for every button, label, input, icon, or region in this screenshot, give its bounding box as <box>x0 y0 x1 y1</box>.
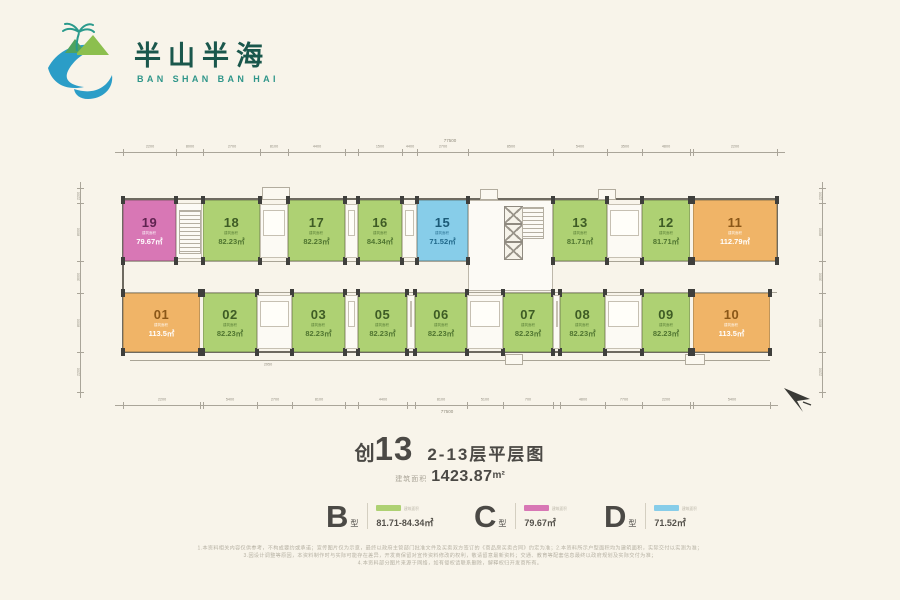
unit-area-label: 建筑面积 <box>373 232 387 236</box>
unit-area-label: 建筑面积 <box>728 232 742 236</box>
legend-swatch-B <box>376 505 401 511</box>
unit-area-label: 建筑面积 <box>573 232 587 236</box>
dimension-tick <box>77 188 84 189</box>
dimension-tick <box>415 402 416 409</box>
wall-tick <box>775 196 779 204</box>
unit-area-value: 71.52㎡ <box>429 237 455 246</box>
wall-tick <box>558 348 562 356</box>
dimension-number: 2700 <box>270 398 278 402</box>
unit-area-value: 82.23㎡ <box>515 329 541 338</box>
unit-10: 10建筑面积113.5㎡ <box>693 293 770 352</box>
lower-canopy-line <box>130 360 770 361</box>
legend-swatch-D <box>654 505 679 511</box>
dimension-number: 1500 <box>376 145 384 149</box>
dimension-number: 3000 <box>77 273 81 281</box>
dimension-number: 700 <box>525 398 531 402</box>
dimension-tick <box>358 149 359 156</box>
legend-kind: 型 <box>498 518 506 529</box>
wall-tick <box>201 196 205 204</box>
legend-value: 81.71-84.34㎡ <box>376 516 433 529</box>
service-slot <box>260 204 288 258</box>
service-slot <box>407 295 415 349</box>
service-slot <box>467 295 503 349</box>
wall-tick <box>286 196 290 204</box>
unit-area-value: 82.23㎡ <box>369 329 395 338</box>
wall-tick <box>501 348 505 356</box>
service-slot <box>257 295 292 349</box>
slot-box <box>405 210 414 236</box>
dimension-line <box>822 182 823 398</box>
dimension-tick <box>607 149 608 156</box>
wall-tick <box>258 257 262 265</box>
wall-tick <box>640 348 644 356</box>
dimension-number: 8000 <box>819 228 823 236</box>
unit-11: 11建筑面积112.79㎡ <box>693 200 777 261</box>
wall-tick <box>691 289 695 297</box>
wall-tick <box>356 257 360 265</box>
wall-tick <box>551 348 555 356</box>
dimension-tick <box>257 402 258 409</box>
dimension-number: 4400 <box>378 398 386 402</box>
dimension-tick <box>642 402 643 409</box>
dimension-tick <box>203 402 204 409</box>
title-floors: 2-13层平层图 <box>427 445 545 464</box>
dimension-number: 8100 <box>437 398 445 402</box>
dimension-number: 7700 <box>619 398 627 402</box>
legend-letter: D <box>604 501 626 532</box>
unit-area-label: 建筑面积 <box>143 232 157 236</box>
dimension-number: 4800 <box>578 398 586 402</box>
dimension-tick <box>819 352 826 353</box>
dimension-tick <box>345 402 346 409</box>
unit-area-label: 建筑面积 <box>434 324 448 328</box>
wall-tick <box>356 348 360 356</box>
unit-area-value: 82.23㎡ <box>303 237 329 246</box>
wall-tick <box>201 257 205 265</box>
unit-area-value: 81.71㎡ <box>653 237 679 246</box>
slot-box <box>348 301 355 327</box>
wall-tick <box>121 289 125 297</box>
unit-area-label: 建筑面积 <box>436 232 450 236</box>
dimension-total: 77500 <box>440 410 453 415</box>
legend-kind: 型 <box>350 518 358 529</box>
wall-tick <box>775 257 779 265</box>
dimension-tick <box>690 402 691 409</box>
disclaimer-line: 3.因设计调整等原因，本资料制作时与实际可能存在差异，开发商保留对宣传资料修改的… <box>127 553 773 561</box>
service-slot <box>402 204 417 258</box>
unit-number: 13 <box>572 215 587 231</box>
dimension-number: 2200 <box>77 368 81 376</box>
wall-tick <box>691 257 695 265</box>
legend-note: 建筑面积 <box>682 505 697 511</box>
dimension-number: 2200 <box>662 398 670 402</box>
canopy-box <box>505 354 523 365</box>
wall-tick <box>400 257 404 265</box>
wall-tick <box>691 196 695 204</box>
unit-number: 06 <box>433 307 448 323</box>
unit-area-value: 113.5㎡ <box>149 329 175 338</box>
dimension-tick <box>292 402 293 409</box>
elevator-core <box>468 200 553 291</box>
dimension-number: 4400 <box>312 145 320 149</box>
dimension-tick <box>200 402 201 409</box>
legend-item-B: B 型 建筑面积 81.71-84.34㎡ <box>326 498 433 534</box>
dimension-tick <box>176 149 177 156</box>
corridor-top-line <box>122 261 777 262</box>
unit-area-value: 82.23㎡ <box>569 329 595 338</box>
unit-number: 05 <box>375 307 390 323</box>
dimension-tick <box>560 402 561 409</box>
wall-tick <box>121 196 125 204</box>
legend-value: 79.67㎡ <box>524 516 576 529</box>
slot-box <box>260 301 289 327</box>
unit-number: 02 <box>222 307 237 323</box>
dimension-number: 2700 <box>438 145 446 149</box>
elevator-shaft <box>504 242 523 260</box>
unit-number: 01 <box>154 307 169 323</box>
dimension-tick <box>819 261 826 262</box>
wall-tick <box>356 196 360 204</box>
unit-number: 09 <box>658 307 673 323</box>
dimension-tick <box>77 261 84 262</box>
unit-area-value: 113.5㎡ <box>719 329 745 338</box>
dimension-number: 5400 <box>727 398 735 402</box>
dimension-tick <box>819 188 826 189</box>
total-area-value: 1423.87 <box>431 468 492 485</box>
north-arrow-icon <box>778 384 818 416</box>
slot-box <box>610 210 639 236</box>
wall-tick <box>603 348 607 356</box>
unit-area-label: 建筑面积 <box>659 324 673 328</box>
unit-19: 19建筑面积79.67㎡ <box>123 200 176 261</box>
dimension-tick <box>503 402 504 409</box>
unit-number: 11 <box>728 215 743 231</box>
dimension-number: 8000 <box>77 318 81 326</box>
unit-area-label: 建筑面积 <box>576 324 590 328</box>
dimension-tick <box>467 402 468 409</box>
unit-number: 17 <box>309 215 324 231</box>
wall-tick <box>691 348 695 356</box>
unit-area-label: 建筑面积 <box>725 324 739 328</box>
dimension-number: 2200 <box>157 398 165 402</box>
wall-tick <box>640 257 644 265</box>
wall-tick <box>551 257 555 265</box>
slot-box <box>348 210 355 236</box>
unit-03: 03建筑面积82.23㎡ <box>292 293 345 352</box>
floor-plan: 2950 19建筑面积79.67㎡18建筑面积82.23㎡17建筑面积82.23… <box>0 0 900 600</box>
dimension-tick <box>642 149 643 156</box>
dimension-number: 5400 <box>576 145 584 149</box>
service-slot <box>553 295 560 349</box>
stairwell <box>176 203 202 259</box>
unit-number: 03 <box>311 307 326 323</box>
unit-17: 17建筑面积82.23㎡ <box>288 200 345 261</box>
wall-tick <box>466 196 470 204</box>
wall-tick <box>121 348 125 356</box>
dimension-number: 5100 <box>481 398 489 402</box>
unit-16: 16建筑面积84.34㎡ <box>358 200 402 261</box>
dimension-number: 4400 <box>405 145 413 149</box>
dimension-tick <box>417 149 418 156</box>
unit-13: 13建筑面积81.71㎡ <box>553 200 607 261</box>
dimension-tick <box>693 149 694 156</box>
unit-02: 02建筑面积82.23㎡ <box>203 293 257 352</box>
dimension-number: 5400 <box>226 398 234 402</box>
unit-number: 15 <box>435 215 450 231</box>
dimension-tick <box>260 149 261 156</box>
unit-area-value: 82.23㎡ <box>428 329 454 338</box>
dimension-tick <box>605 402 606 409</box>
wall-tick <box>400 196 404 204</box>
slot-box <box>608 301 639 327</box>
dimension-number: 8100 <box>270 145 278 149</box>
dimension-tick <box>468 149 469 156</box>
legend-divider <box>515 503 516 529</box>
unit-number: 16 <box>372 215 387 231</box>
wall-tick <box>174 196 178 204</box>
disclaimer-line: 1.本资料相关内容仅供参考，不构成要约或承诺；宣传图片仅为示意，最终以政府主管部… <box>127 545 773 553</box>
legend-item-C: C 型 建筑面积 79.67㎡ <box>474 498 576 534</box>
dimension-number: 3000 <box>819 273 823 281</box>
title-prefix: 创 <box>355 443 375 465</box>
dimension-number: 2200 <box>77 191 81 199</box>
legend-item-D: D 型 建筑面积 71.52㎡ <box>604 498 706 534</box>
wall-tick <box>255 348 259 356</box>
dimension-tick <box>288 149 289 156</box>
wall-tick <box>466 257 470 265</box>
dimension-line <box>80 182 81 398</box>
disclaimer: 1.本资料相关内容仅供参考，不构成要约或承诺；宣传图片仅为示意，最终以政府主管部… <box>127 545 773 568</box>
dimension-tick <box>690 149 691 156</box>
unit-05: 05建筑面积82.23㎡ <box>358 293 407 352</box>
dimension-tick <box>77 392 84 393</box>
wall-tick <box>465 348 469 356</box>
wall-tick <box>415 196 419 204</box>
legend-note: 建筑面积 <box>552 505 567 511</box>
slot-box <box>263 210 285 236</box>
unit-18: 18建筑面积82.23㎡ <box>203 200 260 261</box>
wall-tick <box>605 196 609 204</box>
dimension-tick <box>77 203 84 204</box>
legend-note: 建筑面积 <box>404 505 419 511</box>
unit-area-label: 建筑面积 <box>312 324 326 328</box>
unit-12: 12建筑面积81.71㎡ <box>642 200 690 261</box>
unit-number: 07 <box>520 307 535 323</box>
unit-number: 19 <box>142 215 157 231</box>
service-slot <box>345 295 358 349</box>
wall-tick <box>286 257 290 265</box>
unit-area-value: 81.71㎡ <box>567 237 593 246</box>
total-area-line: 建筑面积1423.87m² <box>0 468 900 486</box>
wall-tick <box>343 348 347 356</box>
dimension-tick <box>553 402 554 409</box>
unit-15: 15建筑面积71.52㎡ <box>417 200 468 261</box>
service-slot <box>607 204 642 258</box>
dimension-number: 2200 <box>819 191 823 199</box>
wall-tick <box>201 348 205 356</box>
legend-kind: 型 <box>628 518 636 529</box>
unit-area-value: 84.34㎡ <box>367 237 393 246</box>
unit-area-label: 建筑面积 <box>225 232 239 236</box>
unit-area-value: 82.23㎡ <box>218 237 244 246</box>
dimension-number: 2200 <box>145 145 153 149</box>
unit-07: 07建筑面积82.23㎡ <box>503 293 553 352</box>
wall-tick <box>768 348 772 356</box>
wall-tick <box>415 257 419 265</box>
legend-divider <box>645 503 646 529</box>
unit-area-value: 112.79㎡ <box>720 237 750 246</box>
unit-06: 06建筑面积82.23㎡ <box>415 293 467 352</box>
total-area-label: 建筑面积 <box>395 476 427 483</box>
plan-title: 创132-13层平层图 <box>0 430 900 468</box>
wall-tick <box>405 348 409 356</box>
title-number: 13 <box>375 430 414 467</box>
elevator-shaft <box>504 224 523 242</box>
dimension-tick <box>77 352 84 353</box>
balcony-box <box>480 189 498 200</box>
wall-tick <box>121 257 125 265</box>
dimension-number: 2200 <box>731 145 739 149</box>
dimension-tick <box>770 402 771 409</box>
slot-box <box>556 301 558 327</box>
dimension-tick <box>123 149 124 156</box>
elevator-shaft <box>504 206 523 224</box>
slot-box <box>470 301 500 327</box>
dimension-number: 8100 <box>314 398 322 402</box>
dimension-line <box>115 152 785 153</box>
dimension-tick <box>123 402 124 409</box>
unit-area-value: 79.67㎡ <box>136 237 162 246</box>
unit-area-label: 建筑面积 <box>310 232 324 236</box>
wall-tick <box>605 257 609 265</box>
unit-number: 18 <box>224 215 239 231</box>
unit-number: 08 <box>575 307 590 323</box>
wall-tick <box>551 196 555 204</box>
service-slot <box>345 204 358 258</box>
legend-letter: B <box>326 501 348 532</box>
wall-tick <box>768 289 772 297</box>
dimension-number: 4800 <box>662 145 670 149</box>
wall-tick <box>343 257 347 265</box>
dimension-total: 77500 <box>444 139 457 144</box>
unit-area-label: 建筑面积 <box>155 324 169 328</box>
wall-tick <box>343 196 347 204</box>
dimension-number: 8000 <box>77 228 81 236</box>
unit-area-value: 82.23㎡ <box>217 329 243 338</box>
unit-area-label: 建筑面积 <box>521 324 535 328</box>
dimension-tick <box>777 149 778 156</box>
dimension-tick <box>203 149 204 156</box>
unit-number: 12 <box>658 215 673 231</box>
legend-divider <box>367 503 368 529</box>
core-stairs <box>522 207 544 239</box>
slot-box <box>410 301 412 327</box>
legend-swatch-C <box>524 505 549 511</box>
legend-value: 71.52㎡ <box>654 516 706 529</box>
wall-tick <box>174 257 178 265</box>
dimension-tick <box>358 402 359 409</box>
wall-tick <box>258 196 262 204</box>
unit-01: 01建筑面积113.5㎡ <box>123 293 200 352</box>
unit-area-value: 82.23㎡ <box>305 329 331 338</box>
unit-09: 09建筑面积82.23㎡ <box>642 293 690 352</box>
dimension-tick <box>819 293 826 294</box>
dimension-number: 8500 <box>506 145 514 149</box>
dimension-number: 8000 <box>819 318 823 326</box>
unit-number: 10 <box>724 307 739 323</box>
dimension-number: 2700 <box>227 145 235 149</box>
dimension-tick <box>402 149 403 156</box>
dimension-tick <box>819 203 826 204</box>
side-dim-label: 2950 <box>264 363 272 367</box>
unit-area-label: 建筑面积 <box>659 232 673 236</box>
unit-area-label: 建筑面积 <box>376 324 390 328</box>
dimension-number: 2200 <box>819 368 823 376</box>
unit-area-label: 建筑面积 <box>223 324 237 328</box>
dimension-number: 3500 <box>620 145 628 149</box>
dimension-tick <box>553 149 554 156</box>
dimension-tick <box>407 402 408 409</box>
dimension-line <box>115 405 778 406</box>
dimension-tick <box>819 392 826 393</box>
stair-treads <box>179 210 201 254</box>
unit-area-value: 82.23㎡ <box>653 329 679 338</box>
dimension-tick <box>693 402 694 409</box>
disclaimer-line: 4.本资料部分图片来源于网络，如有侵权请联系删除，解释权归开发商所有。 <box>127 560 773 568</box>
dimension-tick <box>77 293 84 294</box>
dimension-tick <box>345 149 346 156</box>
wall-tick <box>290 348 294 356</box>
wall-tick <box>640 196 644 204</box>
total-area-unit: m² <box>493 470 505 481</box>
unit-08: 08建筑面积82.23㎡ <box>560 293 605 352</box>
wall-tick <box>413 348 417 356</box>
legend-letter: C <box>474 501 496 532</box>
service-slot <box>605 295 642 349</box>
dimension-number: 8000 <box>185 145 193 149</box>
wall-tick <box>201 289 205 297</box>
